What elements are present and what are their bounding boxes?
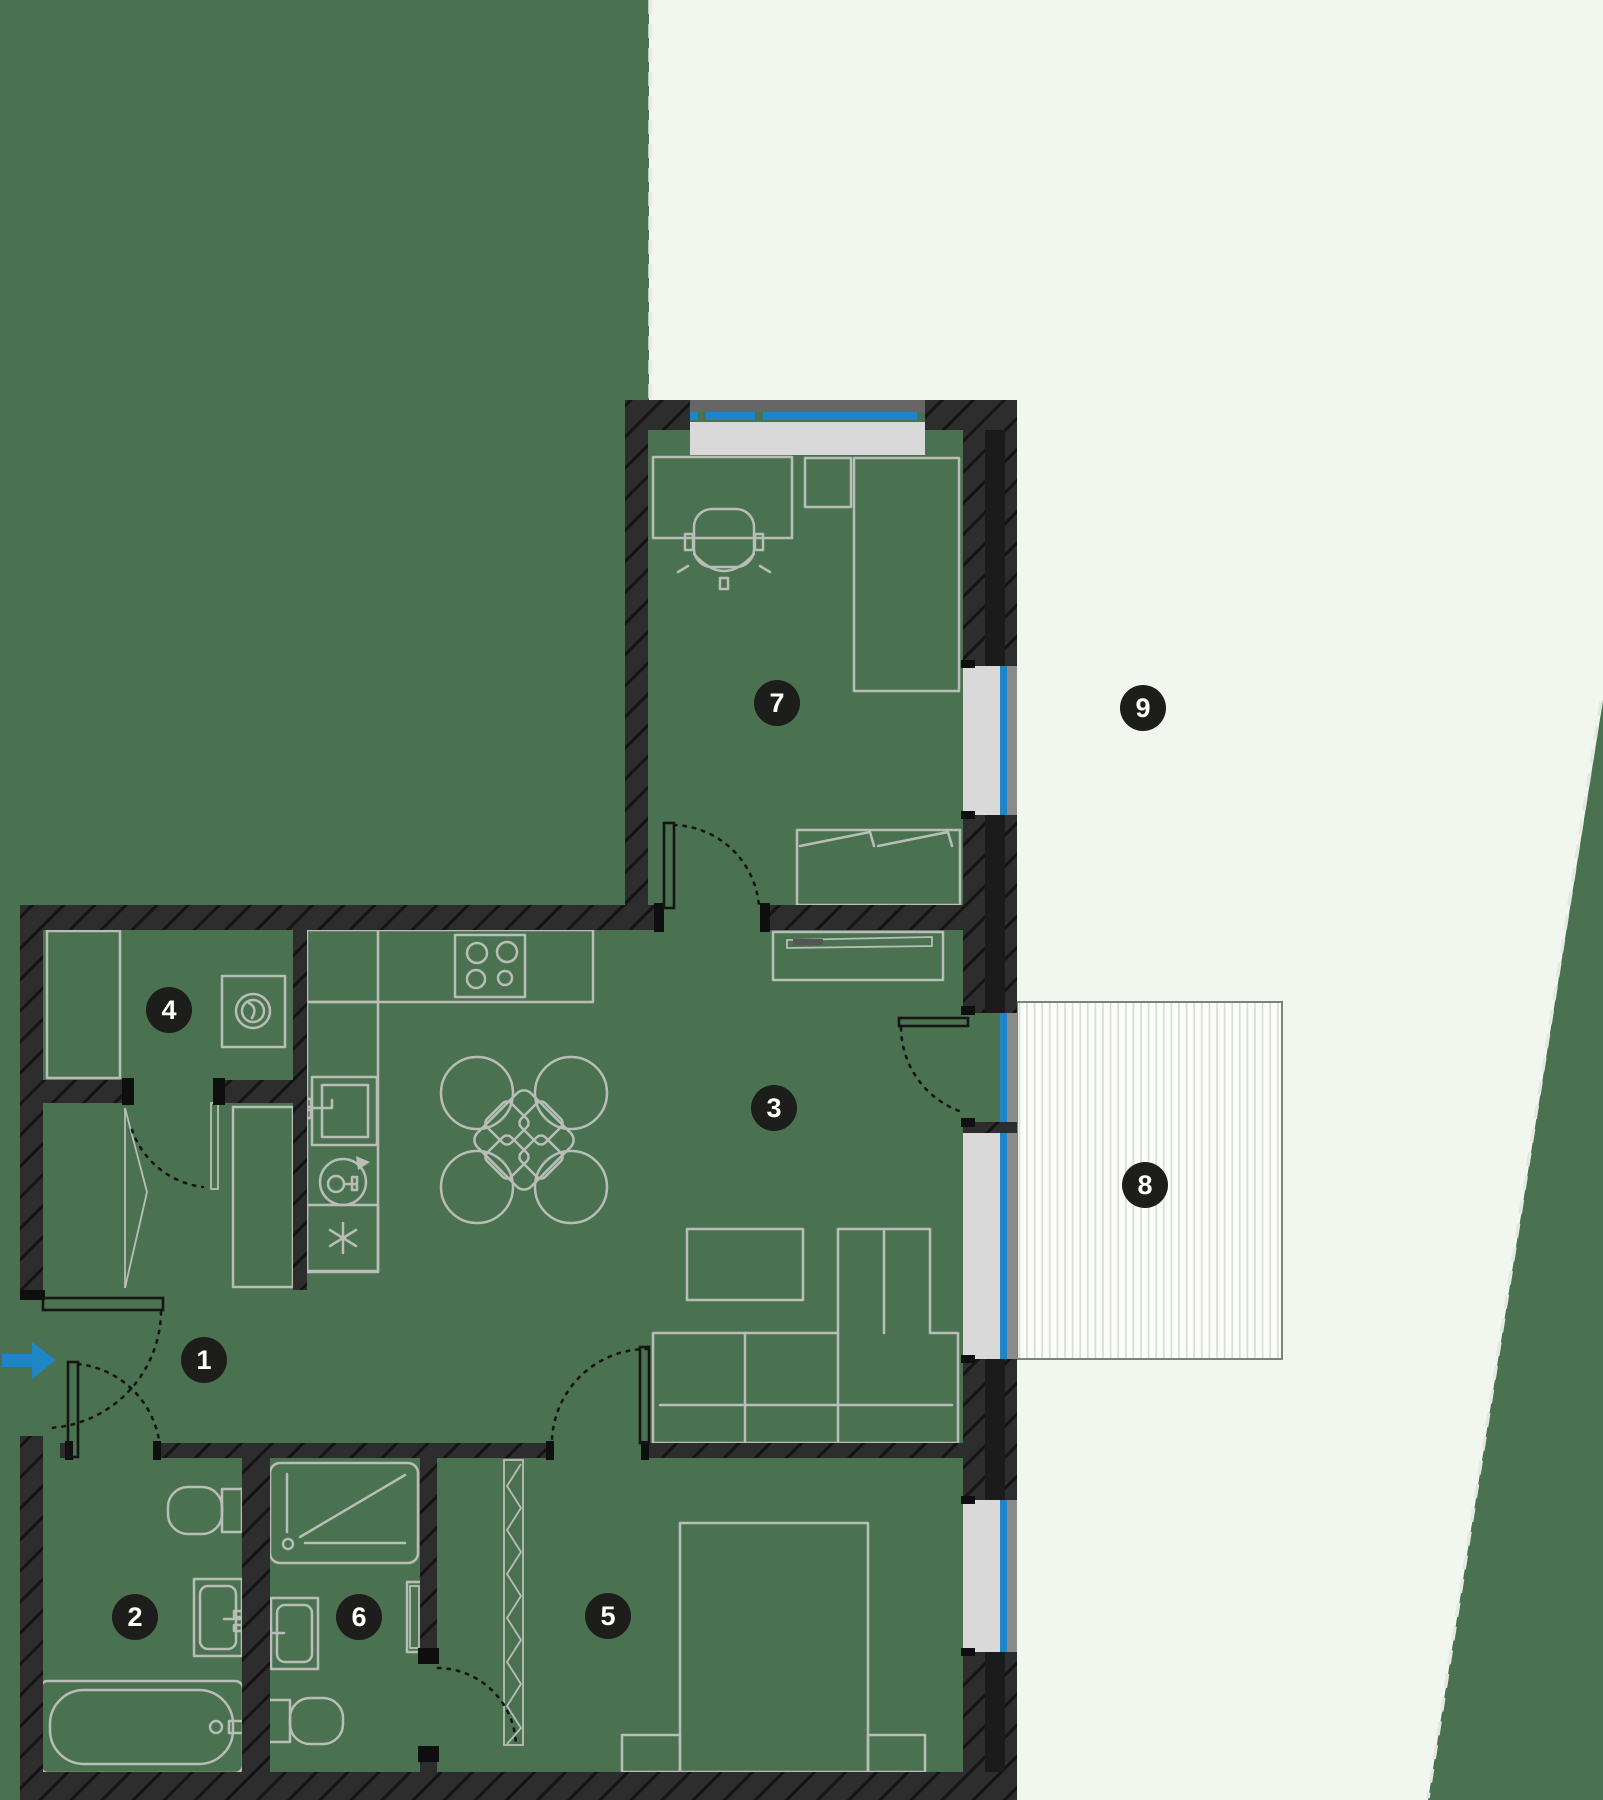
- room-badge-9: 9: [1120, 685, 1166, 731]
- floorplan-canvas: 123456789: [0, 0, 1603, 1800]
- room-badge-4: 4: [146, 987, 192, 1033]
- room-badge-1: 1: [181, 1337, 227, 1383]
- room-badge-8: 8: [1122, 1162, 1168, 1208]
- room-badge-3: 3: [751, 1085, 797, 1131]
- room-badge-6: 6: [336, 1594, 382, 1640]
- room-badge-7: 7: [754, 680, 800, 726]
- room-badge-2: 2: [112, 1594, 158, 1640]
- room-badge-5: 5: [585, 1593, 631, 1639]
- floorplan-drawing: [0, 0, 1603, 1800]
